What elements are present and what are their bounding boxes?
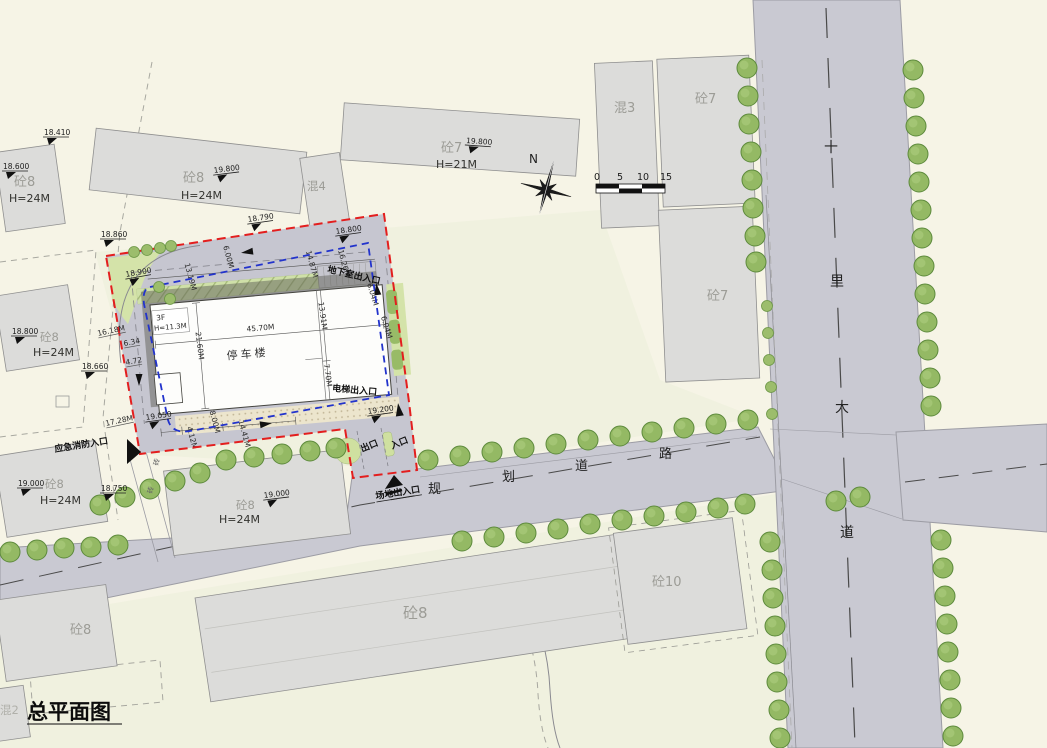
planned-road-char-4: 路: [659, 446, 672, 462]
building-e2: [657, 55, 755, 207]
building-sw2-name: 混2: [0, 703, 19, 717]
avenue-char-4: 道: [840, 525, 854, 541]
scale-tick-15: 15: [660, 172, 672, 183]
planned-road-char-1: 规: [428, 482, 441, 497]
building-e2-name: 砼7: [695, 92, 716, 107]
spot-i: 18.750: [101, 484, 127, 493]
building-w2-height: H=24M: [40, 494, 81, 507]
scale-tick-0: 0: [594, 172, 600, 183]
avenue-char-1: 十: [824, 140, 838, 156]
building-w1-name: 砼8: [40, 330, 59, 344]
building-e3-name: 砼7: [707, 289, 728, 304]
north-label: N: [529, 152, 538, 166]
planned-road-char-2: 划: [502, 470, 515, 485]
planned-road-char-3: 道: [575, 459, 588, 474]
page-title: 总平面图: [27, 700, 111, 724]
building-n1-height: H=24M: [181, 189, 222, 202]
project-site: 45.70M 停车楼 3F H=11.3M 21.60M 13.91M 7.70…: [106, 214, 417, 478]
building-s3-name: 砼10: [652, 575, 682, 590]
elev-nw: 18.600: [3, 162, 29, 171]
avenue-char-2: 里: [830, 274, 844, 290]
elev-w2: 19.000: [18, 479, 44, 488]
scale-tick-10: 10: [637, 172, 649, 183]
building-nw-height: H=24M: [9, 192, 50, 205]
elev-w1: 18.800: [12, 327, 38, 336]
building-sw1-name: 砼8: [70, 623, 91, 638]
site-plan: 45.70M 停车楼 3F H=11.3M 21.60M 13.91M 7.70…: [0, 0, 1047, 748]
building-n1-name: 砼8: [183, 171, 204, 186]
parking-floors: 3F: [156, 313, 166, 323]
building-w2-name: 砼8: [45, 477, 64, 491]
building-n2-name: 混4: [307, 179, 326, 193]
building-n3-name: 砼7: [441, 141, 462, 156]
site-plan-drawing: 45.70M 停车楼 3F H=11.3M 21.60M 13.91M 7.70…: [0, 0, 1047, 748]
building-e1-name: 混3: [614, 101, 635, 116]
spot-a: 18.410: [44, 128, 70, 137]
building-nw-name: 砼8: [14, 175, 35, 190]
scale-tick-5: 5: [617, 172, 623, 183]
avenue-char-3: 大: [835, 400, 849, 416]
branch-road: [896, 424, 1047, 532]
building-s1-name: 砼8: [236, 498, 255, 512]
building-s1-height: H=24M: [219, 513, 260, 526]
spot-b: 18.860: [101, 230, 127, 239]
building-s2-name: 砼8: [403, 604, 428, 622]
building-e1: [594, 61, 659, 228]
building-w1-height: H=24M: [33, 346, 74, 359]
building-sw1: [0, 585, 117, 682]
building-n3-height: H=21M: [436, 158, 477, 171]
spot-f: 18.660: [82, 362, 108, 371]
